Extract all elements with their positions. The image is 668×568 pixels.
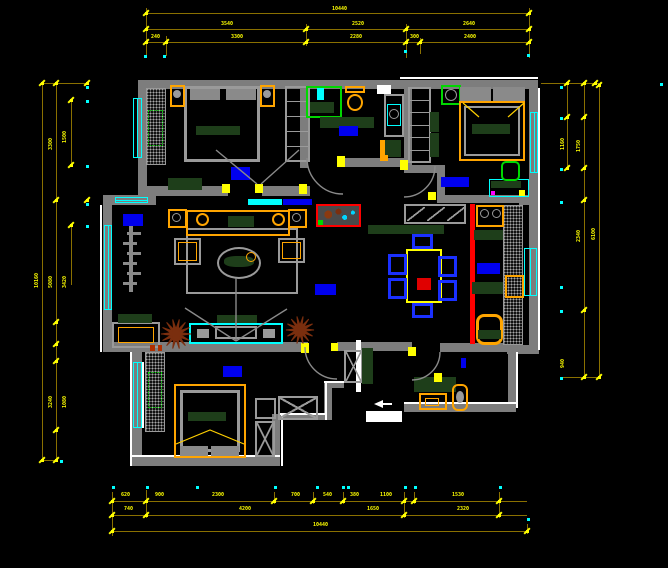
dimension-tick: [70, 224, 73, 227]
snap-marker: [560, 117, 563, 120]
dimension-tick: [145, 500, 148, 503]
dimension-text: 2400: [464, 35, 476, 40]
dimension-text: 3540: [221, 22, 233, 27]
dimension-tick: [86, 199, 89, 202]
dimension-tick: [41, 459, 44, 462]
dimension-tick: [55, 321, 58, 324]
snap-marker: [60, 460, 63, 463]
dimension-text: 240: [151, 35, 160, 40]
snap-marker: [660, 83, 663, 86]
dimension-tick: [498, 500, 501, 503]
cad-floorplan-viewport[interactable]: 1044035402520264024033002280300240062090…: [0, 0, 668, 568]
dimension-tick: [598, 376, 601, 379]
snap-marker: [414, 486, 417, 489]
dimension-text: 2640: [463, 22, 475, 27]
dimension-text: 900: [155, 493, 164, 498]
dimension-text: 10160: [35, 273, 40, 288]
plant-icon: [286, 316, 314, 343]
snap-marker: [560, 201, 563, 204]
dimension-text: 3240: [49, 396, 54, 408]
dimension-tick: [583, 116, 586, 119]
dimension-text: 700: [291, 493, 300, 498]
dimension-tick: [528, 12, 531, 15]
snap-marker: [560, 86, 563, 89]
dimension-line: [584, 83, 585, 377]
dimension-tick: [583, 309, 586, 312]
dimension-text: 620: [121, 493, 130, 498]
dimension-text: 300: [410, 35, 419, 40]
dimension-line: [541, 83, 599, 84]
dimension-text: 6100: [592, 228, 597, 240]
dimension-text: 940: [561, 359, 566, 368]
snap-marker: [146, 486, 149, 489]
snap-marker: [86, 100, 89, 103]
snap-marker: [144, 55, 147, 58]
dimension-text: 1080: [63, 396, 68, 408]
dimension-tick: [528, 41, 531, 44]
dimension-tick: [413, 500, 416, 503]
dimension-tick: [111, 514, 114, 517]
dimension-tick: [566, 167, 569, 170]
dimension-tick: [419, 41, 422, 44]
snap-marker: [86, 165, 89, 168]
dimension-tick: [526, 530, 529, 533]
dimension-text: 4200: [239, 507, 251, 512]
snap-marker: [347, 486, 350, 489]
dimension-tick: [583, 82, 586, 85]
dimension-tick: [55, 459, 58, 462]
dimension-tick: [403, 500, 406, 503]
dimension-tick: [41, 82, 44, 85]
snap-marker: [404, 486, 407, 489]
dimension-tick: [594, 82, 597, 85]
dimension-tick: [498, 514, 501, 517]
dimension-tick: [342, 500, 345, 503]
dimension-tick: [273, 500, 276, 503]
dimension-line: [42, 83, 43, 460]
dimension-text: 2280: [350, 35, 362, 40]
dimension-tick: [55, 82, 58, 85]
dimension-tick: [598, 84, 601, 87]
snap-marker: [499, 486, 502, 489]
dimension-tick: [583, 167, 586, 170]
dimension-text: 10440: [313, 523, 328, 528]
dimension-tick: [583, 376, 586, 379]
dimension-text: 3420: [63, 276, 68, 288]
snap-marker: [560, 286, 563, 289]
dimension-text: 10440: [332, 7, 347, 12]
dimension-tick: [111, 500, 114, 503]
dimension-text: 1530: [452, 493, 464, 498]
snap-marker: [316, 486, 319, 489]
dimension-tick: [566, 82, 569, 85]
dimension-tick: [405, 28, 408, 31]
snap-marker: [86, 86, 89, 89]
dimension-line: [599, 85, 600, 377]
snap-marker: [560, 310, 563, 313]
dimension-line: [112, 531, 527, 532]
snap-marker: [196, 486, 199, 489]
dimension-tick: [583, 199, 586, 202]
dimension-tick: [305, 28, 308, 31]
dimension-tick: [55, 360, 58, 363]
dimension-text: 2520: [352, 22, 364, 27]
dimension-line: [529, 8, 530, 58]
snap-marker: [404, 50, 407, 53]
snap-marker: [274, 486, 277, 489]
dimension-text: 1750: [577, 140, 582, 152]
dimension-line: [71, 225, 72, 285]
dimension-text: 1650: [367, 507, 379, 512]
dimension-text: 1500: [63, 131, 68, 143]
dimension-text: 1160: [561, 138, 566, 150]
snap-marker: [560, 377, 563, 380]
snap-marker: [342, 486, 345, 489]
dimension-tick: [145, 28, 148, 31]
dimension-tick: [403, 514, 406, 517]
dimension-tick: [165, 41, 168, 44]
dimension-tick: [55, 343, 58, 346]
snap-marker: [86, 203, 89, 206]
dimension-text: 1100: [380, 493, 392, 498]
dimension-tick: [86, 82, 89, 85]
dimension-tick: [145, 514, 148, 517]
dimension-text: 3300: [231, 35, 243, 40]
dimension-tick: [145, 12, 148, 15]
dimension-tick: [70, 99, 73, 102]
dimension-tick: [305, 41, 308, 44]
dimension-tick: [312, 500, 315, 503]
dimension-line: [56, 83, 57, 460]
dimension-tick: [405, 41, 408, 44]
snap-marker: [112, 486, 115, 489]
dimension-tick: [55, 199, 58, 202]
dimension-text: 2300: [212, 493, 224, 498]
dimension-line: [146, 29, 529, 30]
dimension-line: [146, 42, 529, 43]
dimension-line: [112, 501, 527, 502]
dimension-tick: [528, 28, 531, 31]
dimension-line: [71, 100, 72, 165]
dimension-tick: [111, 530, 114, 533]
dimension-text: 5080: [49, 276, 54, 288]
snap-marker: [560, 168, 563, 171]
dimension-tick: [55, 429, 58, 432]
plant-icon: [161, 319, 191, 348]
dimension-line: [146, 13, 529, 14]
dimension-text: 2340: [577, 230, 582, 242]
dimension-tick: [566, 116, 569, 119]
dimension-text: 740: [124, 507, 133, 512]
dimension-text: 3300: [49, 138, 54, 150]
dimension-line: [112, 515, 527, 516]
dimension-text: 380: [350, 493, 359, 498]
dimension-tick: [70, 164, 73, 167]
snap-marker: [527, 518, 530, 521]
dimension-text: 2320: [457, 507, 469, 512]
dimension-tick: [145, 41, 148, 44]
dimension-line: [567, 83, 568, 170]
snap-marker: [86, 225, 89, 228]
dimension-text: 540: [323, 493, 332, 498]
dimension-line: [40, 83, 88, 84]
snap-marker: [527, 54, 530, 57]
dimension-line: [146, 8, 147, 55]
snap-marker: [163, 55, 166, 58]
